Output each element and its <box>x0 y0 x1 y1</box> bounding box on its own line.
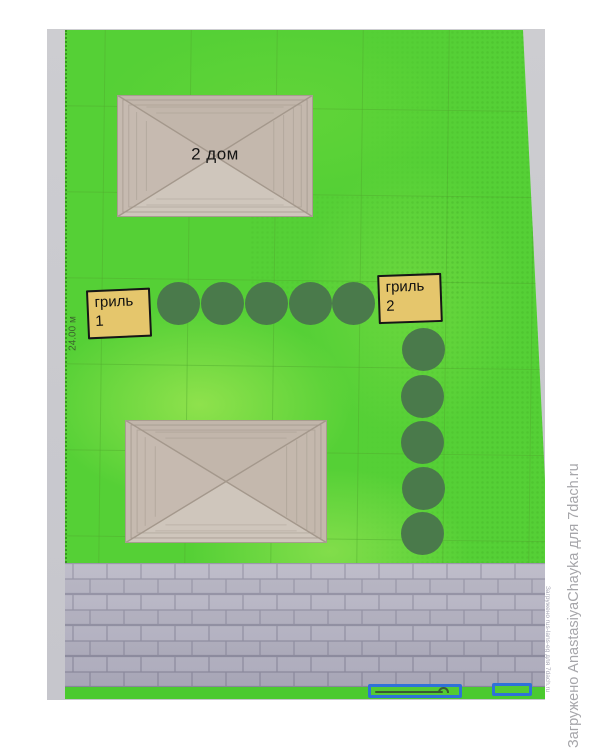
tree-circle <box>245 282 288 325</box>
hip-roof-drawing <box>125 420 327 543</box>
bottom-grass-strip <box>65 687 545 699</box>
tree-circle <box>401 512 444 555</box>
blue-outline-box-1 <box>368 684 462 698</box>
tree-circle <box>332 282 375 325</box>
tree-circle <box>402 328 445 371</box>
blue-outline-box-2 <box>492 683 532 696</box>
tree-circle <box>401 375 444 418</box>
tree-circle <box>201 282 244 325</box>
grill-2-number: 2 <box>386 296 437 316</box>
house-2-label: 2 дом <box>117 144 313 164</box>
left-dimension-label: 24.00 м <box>68 291 79 377</box>
grill-2-label: гриль 2 <box>377 273 443 324</box>
tree-circle <box>289 282 332 325</box>
box-inner-arc <box>438 687 449 693</box>
grill-1-label: гриль 1 <box>86 288 152 340</box>
tree-circle <box>401 421 444 464</box>
right-watermark: Загружено AnastasiyaChayka для 7dach.ru <box>566 418 592 748</box>
paved-area <box>65 563 545 687</box>
paver-shading <box>65 563 545 687</box>
box-inner-line <box>375 691 443 693</box>
grill-1-word: гриль <box>94 292 145 313</box>
house-2-roof: 2 дом <box>117 95 313 217</box>
tree-circle <box>402 467 445 510</box>
inner-watermark: Загружено rus-lans-eg для 7dach.ru <box>541 586 551 700</box>
screenshot-page: 2 дом гриль 1 гриль 2 24.00 м <box>0 0 600 749</box>
bottom-house-roof <box>125 420 327 543</box>
tree-circle <box>157 282 200 325</box>
grill-1-number: 1 <box>95 311 146 332</box>
grill-2-word: гриль <box>385 277 436 297</box>
